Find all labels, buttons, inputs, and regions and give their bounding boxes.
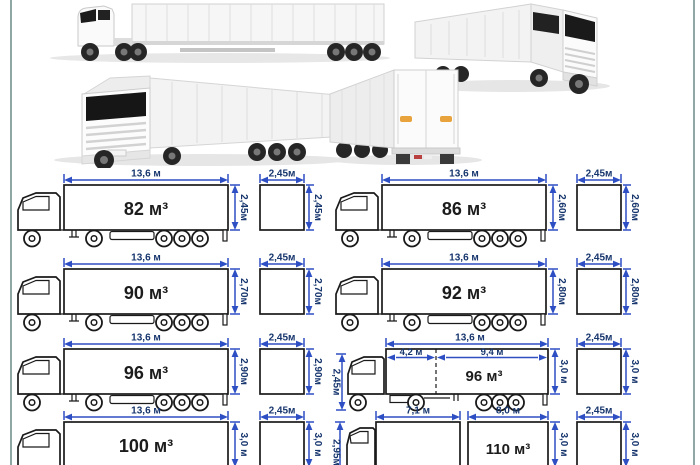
height-dimension: 2,45м	[312, 194, 322, 221]
width-dimension: 2,45м	[586, 333, 613, 344]
truck-diagram-90m3: 13,6 м 90 м³ 2,70м	[14, 250, 250, 338]
length-dimension: 13,6 м	[131, 253, 161, 264]
width-dimension: 2,45м	[586, 253, 613, 264]
truck-diagram-110m3: 7,1 м 8,0 м 110 м³ 2,95м 3,0 м	[332, 403, 568, 465]
width-dimension: 2,45м	[269, 333, 296, 344]
front-length-dimension: 4,2 м	[400, 347, 423, 358]
width-dimension: 2,45м	[586, 169, 613, 180]
rear-length-dimension: 9,4 м	[481, 347, 504, 358]
length-dimension: 13,6 м	[449, 253, 479, 264]
height-dimension: 3,0 м	[312, 432, 322, 456]
height-dimension: 3,0 м	[629, 432, 639, 456]
cross-section-110m3: 2,45м 3,0 м	[565, 403, 639, 465]
cross-section-line-art	[260, 338, 314, 394]
page-left-border	[10, 0, 12, 465]
cross-section-100m3: 2,45м 3,0 м	[248, 403, 322, 465]
photo-truck-side-view	[40, 0, 390, 66]
total-length-dimension: 13,6 м	[455, 333, 485, 344]
volume-label: 110 м³	[486, 441, 530, 458]
length-dimension: 13,6 м	[131, 333, 161, 344]
photo-truck-front-left	[52, 66, 352, 168]
photo-trailer-rear-view	[328, 58, 488, 168]
page-right-border	[693, 0, 695, 465]
front-length-dimension: 7,1 м	[406, 406, 430, 417]
volume-label: 96 м³	[124, 363, 168, 383]
volume-label: 90 м³	[124, 283, 168, 303]
length-dimension: 13,6 м	[131, 406, 161, 417]
cross-section-line-art	[577, 258, 631, 314]
height-dimension: 2,60м	[629, 194, 639, 221]
volume-label: 92 м³	[442, 283, 486, 303]
truck-diagram-82m3: 13,6 м 82 м³ 2,45м	[14, 166, 250, 254]
cross-section-line-art	[260, 174, 314, 230]
volume-label: 86 м³	[442, 199, 486, 219]
height-dimension: 3,0 м	[629, 359, 639, 383]
cross-section-line-art	[577, 338, 631, 394]
cross-section-92m3: 2,45м 2,80м	[565, 250, 639, 338]
cab-height-dimension: 2,95м	[332, 439, 342, 465]
volume-label: 82 м³	[124, 199, 168, 219]
road-train-line-art	[336, 338, 560, 411]
height-dimension: 2,90м	[312, 358, 322, 385]
width-dimension: 2,45м	[586, 406, 613, 417]
truck-diagram-100m3: 13,6 м 100 м³ 3,0 м	[14, 403, 250, 465]
height-dimension: 2,80м	[629, 278, 639, 305]
truck-diagram-86m3: 13,6 м 86 м³ 2,60м	[332, 166, 568, 254]
rear-length-dimension: 8,0 м	[496, 406, 520, 417]
cross-section-line-art	[577, 174, 631, 230]
length-dimension: 13,6 м	[449, 169, 479, 180]
cab-height-dimension: 2,45м	[332, 369, 342, 396]
length-dimension: 13,6 м	[131, 169, 161, 180]
width-dimension: 2,45м	[269, 406, 296, 417]
width-dimension: 2,45м	[269, 169, 296, 180]
cross-section-line-art	[260, 411, 314, 465]
width-dimension: 2,45м	[269, 253, 296, 264]
cross-section-86m3: 2,45м 2,60м	[565, 166, 639, 254]
cross-section-82m3: 2,45м 2,45м	[248, 166, 322, 254]
volume-label: 100 м³	[119, 436, 173, 456]
cross-section-90m3: 2,45м 2,70м	[248, 250, 322, 338]
height-dimension: 2,70м	[312, 278, 322, 305]
truck-diagram-92m3: 13,6 м 92 м³ 2,80м	[332, 250, 568, 338]
truck-volumes-infographic: 13,6 м 82 м³ 2,45м 2,45м 2,45м 13,6 м 86…	[0, 0, 700, 465]
cross-section-line-art	[260, 258, 314, 314]
cross-section-line-art	[577, 411, 631, 465]
volume-label: 96 м³	[466, 368, 503, 385]
